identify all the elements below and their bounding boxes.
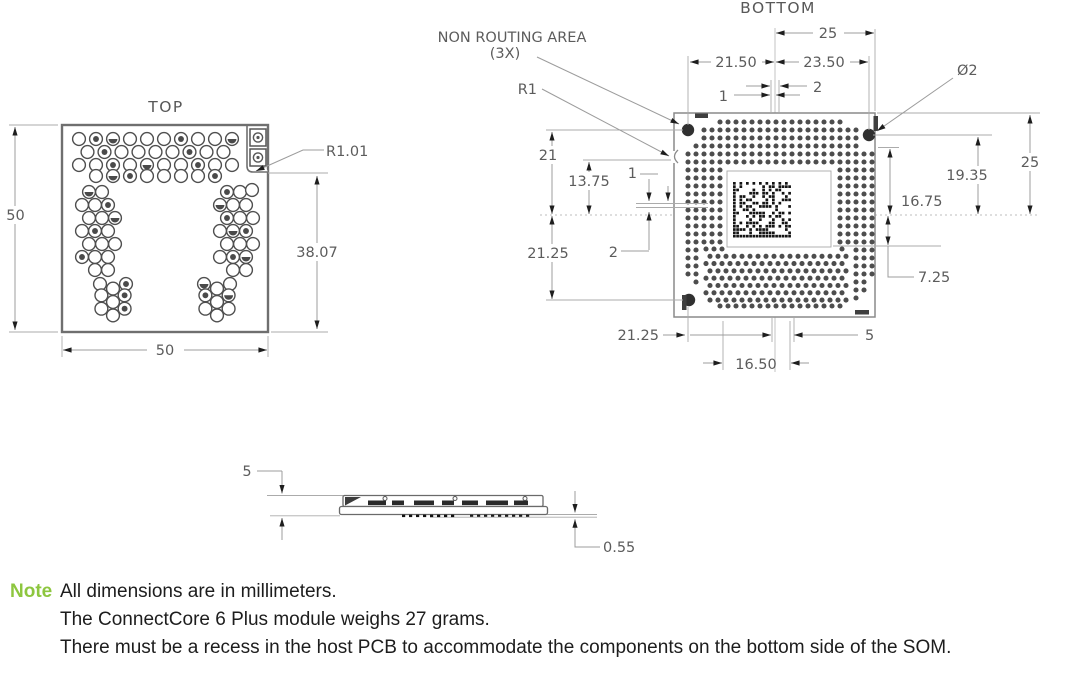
notes: Note All dimensions are in millimeters. …	[10, 581, 951, 658]
dim-b2125-left: 21.25	[527, 246, 569, 262]
note-line-2: The ConnectCore 6 Plus module weighs 27 …	[60, 609, 490, 630]
dim-b2125-bottom: 21.25	[617, 328, 659, 344]
dim-b1-top: 1	[719, 89, 728, 105]
top-view: TOP 50 50 38.07 R1.01	[1, 98, 368, 359]
callout-r1: R1	[518, 82, 537, 98]
dim-top-right: 38.07	[296, 245, 338, 261]
dim-b725: 7.25	[918, 270, 950, 286]
dim-b1935: 19.35	[946, 168, 988, 184]
fiducial-br	[855, 310, 869, 315]
dim-top-width: 50	[156, 343, 174, 359]
dim-b5: 5	[865, 328, 874, 344]
dim-side-height: 5	[242, 464, 251, 480]
dim-b25-right: 25	[1021, 155, 1039, 171]
dim-top-height: 50	[6, 208, 24, 224]
note-line-1: All dimensions are in millimeters.	[60, 581, 337, 602]
mechanical-drawing-page: TOP 50 50 38.07 R1.01 BOTTOM	[0, 0, 1080, 673]
side-pcb	[340, 507, 548, 515]
connector-2-dot	[256, 156, 259, 159]
callout-non-routing-qty: (3X)	[490, 46, 520, 62]
fiducial-tr	[874, 116, 879, 131]
note-line-3: There must be a recess in the host PCB t…	[60, 637, 951, 658]
dim-b1-left: 1	[628, 166, 637, 182]
dim-b1650: 16.50	[735, 357, 777, 373]
bottom-view-title: BOTTOM	[740, 0, 816, 17]
dim-b2-top: 2	[813, 80, 822, 96]
non-routing-hole-tl	[682, 124, 694, 136]
top-view-title: TOP	[147, 98, 184, 116]
bottom-view: BOTTOM	[438, 0, 1047, 373]
mechanical-drawing: TOP 50 50 38.07 R1.01 BOTTOM	[0, 0, 1080, 673]
fiducial-bl	[682, 295, 687, 310]
side-view: 5 0.55	[242, 464, 635, 556]
note-label: Note	[10, 581, 52, 602]
connector-1-dot	[256, 136, 259, 139]
dim-b2-left: 2	[609, 245, 618, 261]
dim-side-standoff: 0.55	[603, 540, 635, 556]
callout-dia-2: Ø2	[957, 63, 978, 79]
dim-b21: 21	[539, 148, 557, 164]
callout-r1-01: R1.01	[326, 144, 368, 160]
dim-b1675: 16.75	[901, 194, 943, 210]
dim-b25-top: 25	[819, 26, 837, 42]
dim-b1375: 13.75	[568, 174, 610, 190]
callout-non-routing-area: NON ROUTING AREA	[438, 30, 587, 46]
dim-b2150: 21.50	[715, 55, 757, 71]
dim-b2350: 23.50	[803, 55, 845, 71]
fiducial-tl	[695, 114, 708, 119]
